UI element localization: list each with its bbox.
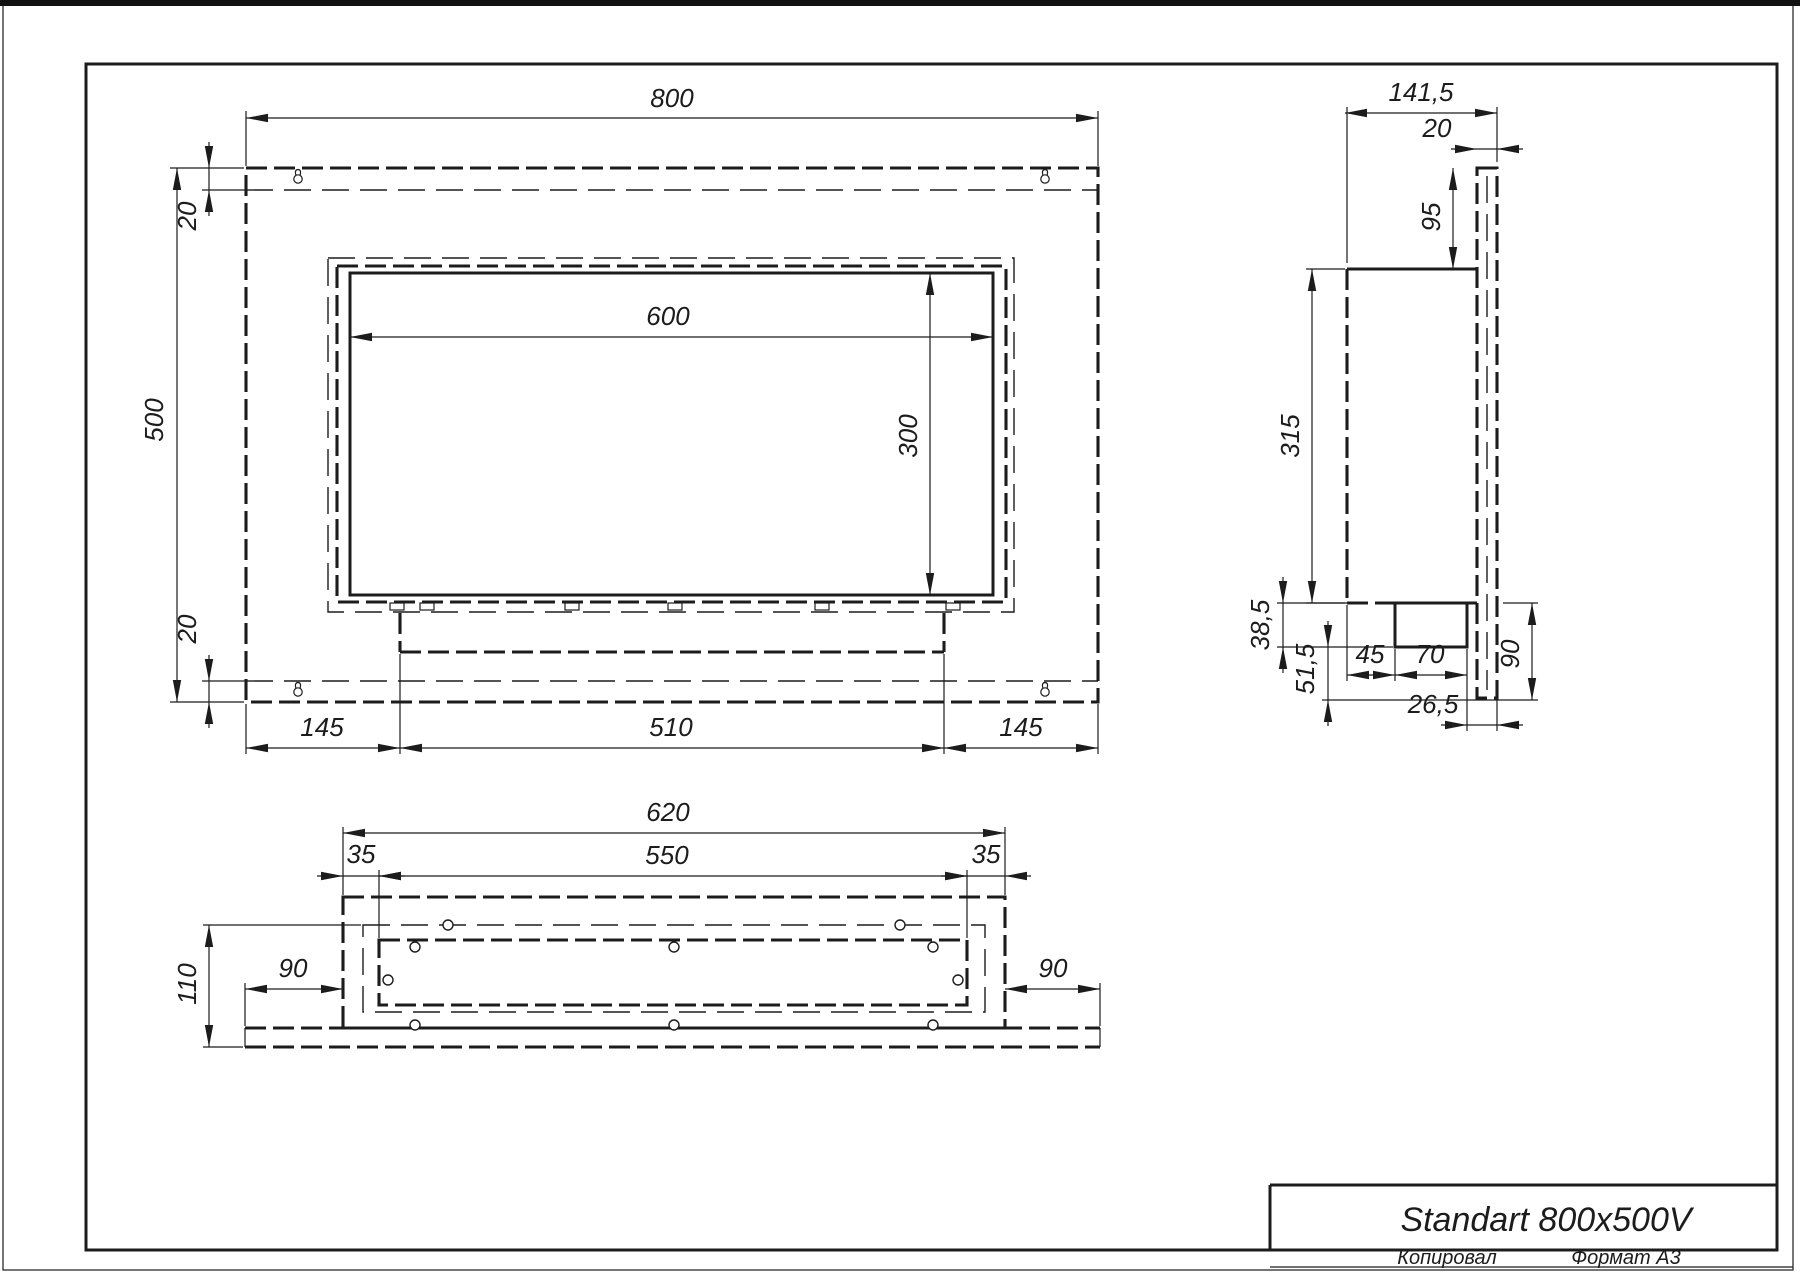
dim-label: 300 <box>893 414 923 458</box>
dim-label: 20 <box>1422 113 1452 143</box>
dimension-arrow <box>245 985 267 993</box>
mount-tab <box>565 603 579 610</box>
screw-hole <box>410 1020 420 1030</box>
screw-hole <box>669 1020 679 1030</box>
dimension-arrow <box>971 333 993 341</box>
drawing-sheet: 8005002020600300145510145 141,5209531538… <box>0 0 1800 1273</box>
dim-label: 600 <box>646 301 690 331</box>
dimension-arrow <box>1345 109 1367 117</box>
keyhole-slot-icon <box>294 683 302 697</box>
dim-label: 35 <box>972 839 1001 869</box>
dimension-arrow <box>205 190 213 212</box>
dimension-arrow <box>205 702 213 724</box>
page-outer-border <box>3 4 1793 1270</box>
dim-label: 45 <box>1356 639 1385 669</box>
dimension-arrow <box>205 925 213 947</box>
dimension-arrow <box>1395 671 1417 679</box>
engineering-drawing: 8005002020600300145510145 141,5209531538… <box>0 0 1800 1273</box>
dimension-arrow <box>1005 872 1027 880</box>
dimension-arrow <box>379 872 401 880</box>
dim-label: 51,5 <box>1290 643 1320 694</box>
dim-label: 315 <box>1275 414 1305 458</box>
dimension-arrow <box>1279 647 1287 669</box>
keyhole-slot-icon <box>1041 170 1049 184</box>
keyhole-slot-icon <box>1041 683 1049 697</box>
dim-label: 110 <box>172 963 202 1005</box>
dim-label: 70 <box>1416 639 1445 669</box>
dim-label: 26,5 <box>1407 689 1459 719</box>
drawing-title: Standart 800x500V <box>1400 1201 1694 1239</box>
dimension-arrow <box>173 680 181 702</box>
dimension-arrow <box>1373 671 1395 679</box>
screw-hole <box>443 920 453 930</box>
dim-label: 95 <box>1416 202 1446 231</box>
dimension-arrow <box>1076 114 1098 122</box>
outline <box>246 168 1098 702</box>
mount-tab <box>815 603 829 610</box>
dimension-arrow <box>173 168 181 190</box>
dimension-arrow <box>1497 721 1519 729</box>
dimension-arrow <box>1449 247 1457 269</box>
dim-label: 145 <box>300 712 344 742</box>
dimension-arrow <box>205 146 213 168</box>
dimension-arrow <box>378 744 400 752</box>
dimension-arrow <box>1449 168 1457 190</box>
dim-label: 510 <box>649 712 693 742</box>
dimension-arrow <box>1324 625 1332 647</box>
dimension-arrow <box>246 744 268 752</box>
mount-tab <box>668 603 682 610</box>
dimension-arrow <box>1308 581 1316 603</box>
dimension-arrow <box>926 273 934 295</box>
dim-label: 90 <box>279 953 308 983</box>
dim-label: 38,5 <box>1245 599 1275 650</box>
dim-label: 800 <box>650 83 694 113</box>
dim-label: 90 <box>1039 953 1068 983</box>
screw-hole <box>928 1020 938 1030</box>
dimension-arrow <box>205 659 213 681</box>
dimension-arrow <box>1078 985 1100 993</box>
dimension-arrow <box>1347 671 1369 679</box>
dim-label: 141,5 <box>1388 77 1454 107</box>
scan-edge-bar <box>0 0 1800 6</box>
dimension-arrow <box>1279 581 1287 603</box>
dimension-arrow <box>1445 721 1467 729</box>
screw-hole <box>928 942 938 952</box>
dimension-arrow <box>926 573 934 595</box>
dimension-arrow <box>321 872 343 880</box>
dimension-arrow <box>246 114 268 122</box>
title-block: Standart 800x500V Копировал Формат А3 <box>1270 1185 1793 1269</box>
dimension-arrow <box>1445 671 1467 679</box>
dimension-arrow <box>1005 985 1027 993</box>
outline <box>363 925 985 1012</box>
screw-hole <box>410 942 420 952</box>
screw-hole <box>669 942 679 952</box>
mount-tab <box>420 603 434 610</box>
mount-tab <box>390 603 404 610</box>
side-view: 141,5209531538,551,5457026,590 <box>1245 77 1538 731</box>
dimension-arrow <box>400 744 422 752</box>
dim-label: 20 <box>172 614 202 644</box>
dimension-arrow <box>945 872 967 880</box>
format-label: Формат А3 <box>1571 1247 1680 1269</box>
dimension-arrow <box>1475 109 1497 117</box>
screw-hole <box>953 975 963 985</box>
dimension-arrow <box>1308 269 1316 291</box>
copied-by-label: Копировал <box>1397 1247 1496 1269</box>
dimension-arrow <box>350 333 372 341</box>
dimension-arrow <box>343 829 365 837</box>
dimension-arrow <box>1497 145 1519 153</box>
outline <box>343 897 1005 1028</box>
dim-label: 145 <box>999 712 1043 742</box>
dimension-arrow <box>1528 678 1536 700</box>
dimension-arrow <box>1324 700 1332 722</box>
dimension-arrow <box>983 829 1005 837</box>
dimension-arrow <box>321 985 343 993</box>
front-view: 8005002020600300145510145 <box>139 83 1098 754</box>
screw-hole <box>383 975 393 985</box>
dimension-arrow <box>205 1025 213 1047</box>
dim-label: 35 <box>347 839 376 869</box>
dim-label: 20 <box>172 201 202 231</box>
mount-tab <box>946 603 960 610</box>
dim-label: 90 <box>1495 639 1525 668</box>
dim-label: 500 <box>139 398 169 442</box>
dimension-arrow <box>922 744 944 752</box>
screw-hole <box>895 920 905 930</box>
dimension-arrow <box>1076 744 1098 752</box>
dim-label: 620 <box>646 797 690 827</box>
dimension-arrow <box>944 744 966 752</box>
keyhole-slot-icon <box>294 170 302 184</box>
dim-label: 550 <box>645 840 689 870</box>
bottom-view: 62055035351109090 <box>172 797 1100 1047</box>
dimension-arrow <box>1455 145 1477 153</box>
dimension-arrow <box>1528 603 1536 625</box>
